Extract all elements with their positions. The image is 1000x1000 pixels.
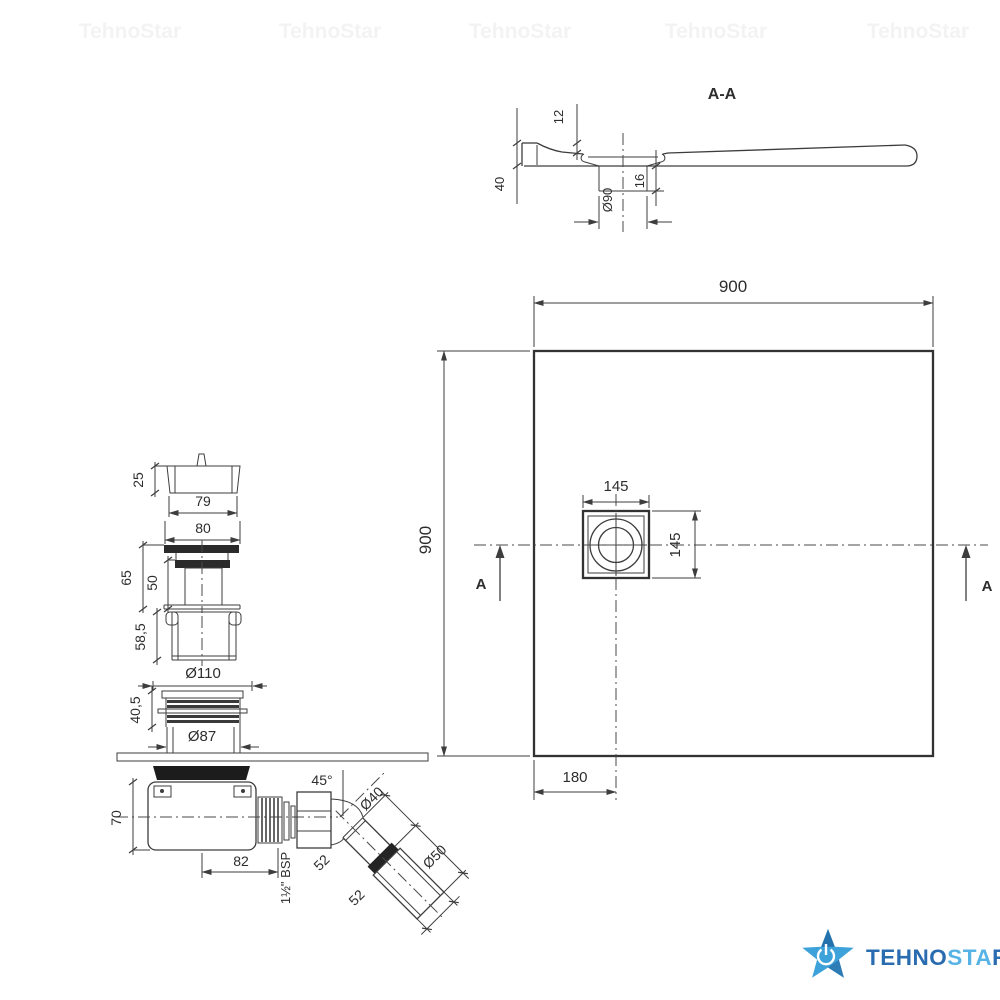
logo-word-part2: STA [947,945,992,970]
dim-ribbed-height: 40,5 [127,696,143,723]
watermark-text: TehnoStar [279,20,381,43]
logo-word-part3: R [992,945,1000,970]
dim-cap-height: 25 [130,472,146,488]
dim-flange-width: 80 [195,520,211,536]
tray-plate [117,753,428,761]
logo-wordmark: TEHNOSTAR [866,945,1000,970]
section-marker-right: A [962,545,993,601]
compression-nut [297,792,331,848]
section-marker-right-label: A [982,578,993,595]
tray-outline [534,351,933,756]
rubber-gasket [153,766,250,780]
watermark-text: TehnoStar [79,20,181,43]
dim-tray-height: 900 [416,526,435,554]
angle-label: 45° [311,772,332,788]
dim-waste-body: 50 [144,575,160,591]
dim-rim-depth: 12 [551,110,566,124]
logo: TEHNOSTAR [802,929,1000,978]
watermark-text: TehnoStar [867,20,969,43]
dim-sleeve-height: 58,5 [132,623,148,650]
dim-body-diameter: Ø87 [188,728,216,745]
plan-view: 900 900 145 145 180 [416,277,993,800]
watermark-text: TehnoStar [665,20,767,43]
logo-word-part1: TEHNO [866,945,947,970]
dim-flange-diameter: Ø110 [185,665,221,682]
dim-trap-length: 82 [233,853,249,869]
section-view-aa: A-A 40 12 Ø90 16 [492,86,917,232]
dim-segment-b: 52 [345,886,367,908]
section-marker-left-label: A [476,576,487,593]
technical-drawing-page: TehnoStar TehnoStar TehnoStar TehnoStar … [0,0,1000,1000]
watermark-row: TehnoStar TehnoStar TehnoStar TehnoStar … [79,20,969,43]
trap-body [148,782,256,850]
thread-label: 1½" BSP [278,852,293,904]
dim-drain-offset: 180 [562,769,587,786]
dim-drain-height: 145 [667,532,684,557]
section-marker-left: A [476,545,505,601]
dim-drain-width: 145 [603,478,628,495]
watermark-text: TehnoStar [469,20,571,43]
dim-trap-height: 70 [108,810,124,826]
shower-tray-drawing: TehnoStar TehnoStar TehnoStar TehnoStar … [0,0,1000,1000]
dim-cap-width: 79 [195,493,211,509]
section-title: A-A [708,86,737,103]
dim-socket-diameter: Ø50 [419,841,449,871]
dim-boss-height: 16 [632,174,647,188]
dim-edge-height: 40 [492,177,507,191]
dim-outlet-diameter: Ø40 [356,783,386,813]
dim-segment-a: 52 [310,851,332,873]
dim-tray-width: 900 [719,277,747,296]
dim-drain-hole: Ø90 [600,188,615,213]
dim-waste-total: 65 [118,570,134,586]
